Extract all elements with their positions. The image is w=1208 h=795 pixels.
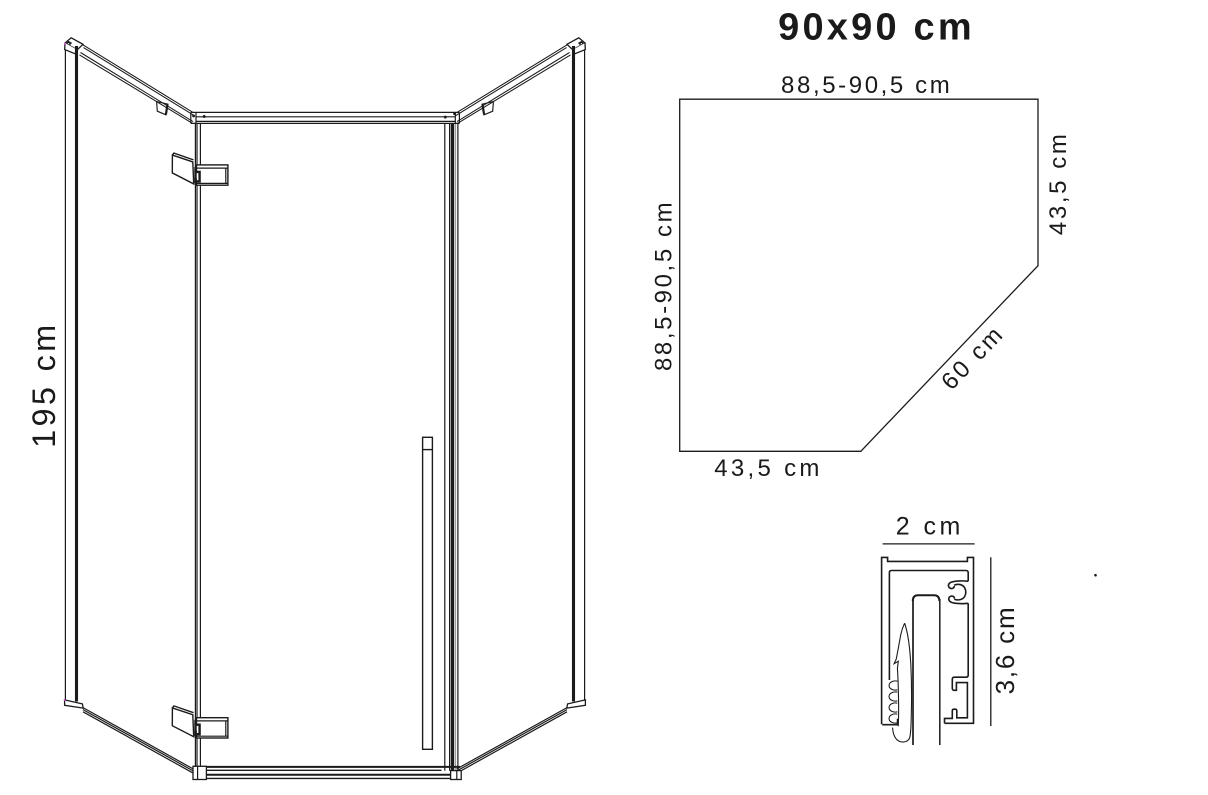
svg-text:43,5 cm: 43,5 cm [1045, 132, 1072, 236]
svg-text:2 cm: 2 cm [896, 512, 964, 540]
svg-text:90x90 cm: 90x90 cm [778, 7, 975, 49]
svg-text:3,6 cm: 3,6 cm [990, 606, 1020, 695]
svg-text:195 cm: 195 cm [26, 322, 62, 448]
svg-text:60 cm: 60 cm [936, 320, 1010, 395]
svg-text:43,5 cm: 43,5 cm [714, 455, 822, 482]
svg-text:88,5-90,5 cm: 88,5-90,5 cm [781, 72, 952, 99]
svg-text:88,5-90,5 cm: 88,5-90,5 cm [650, 200, 677, 371]
